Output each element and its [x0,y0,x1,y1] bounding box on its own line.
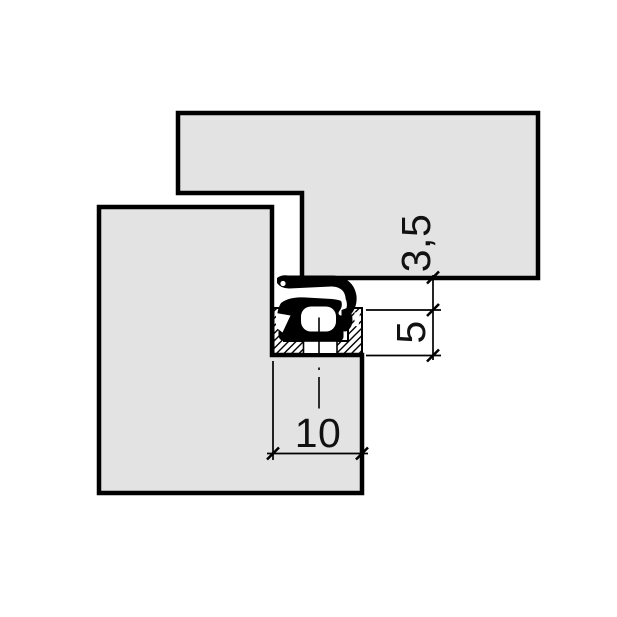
dimension-label-groove-depth: 5 [388,320,434,343]
dimension-label-gap: 3,5 [393,214,439,273]
seal-lip-tip-notch [280,281,285,286]
groove-bottom-recess [304,342,338,353]
drawing-canvas: 3,5 5 10 [0,0,617,617]
seal-cross-section-drawing: 3,5 5 10 [0,0,617,617]
dimension-label-groove-width: 10 [295,410,342,456]
